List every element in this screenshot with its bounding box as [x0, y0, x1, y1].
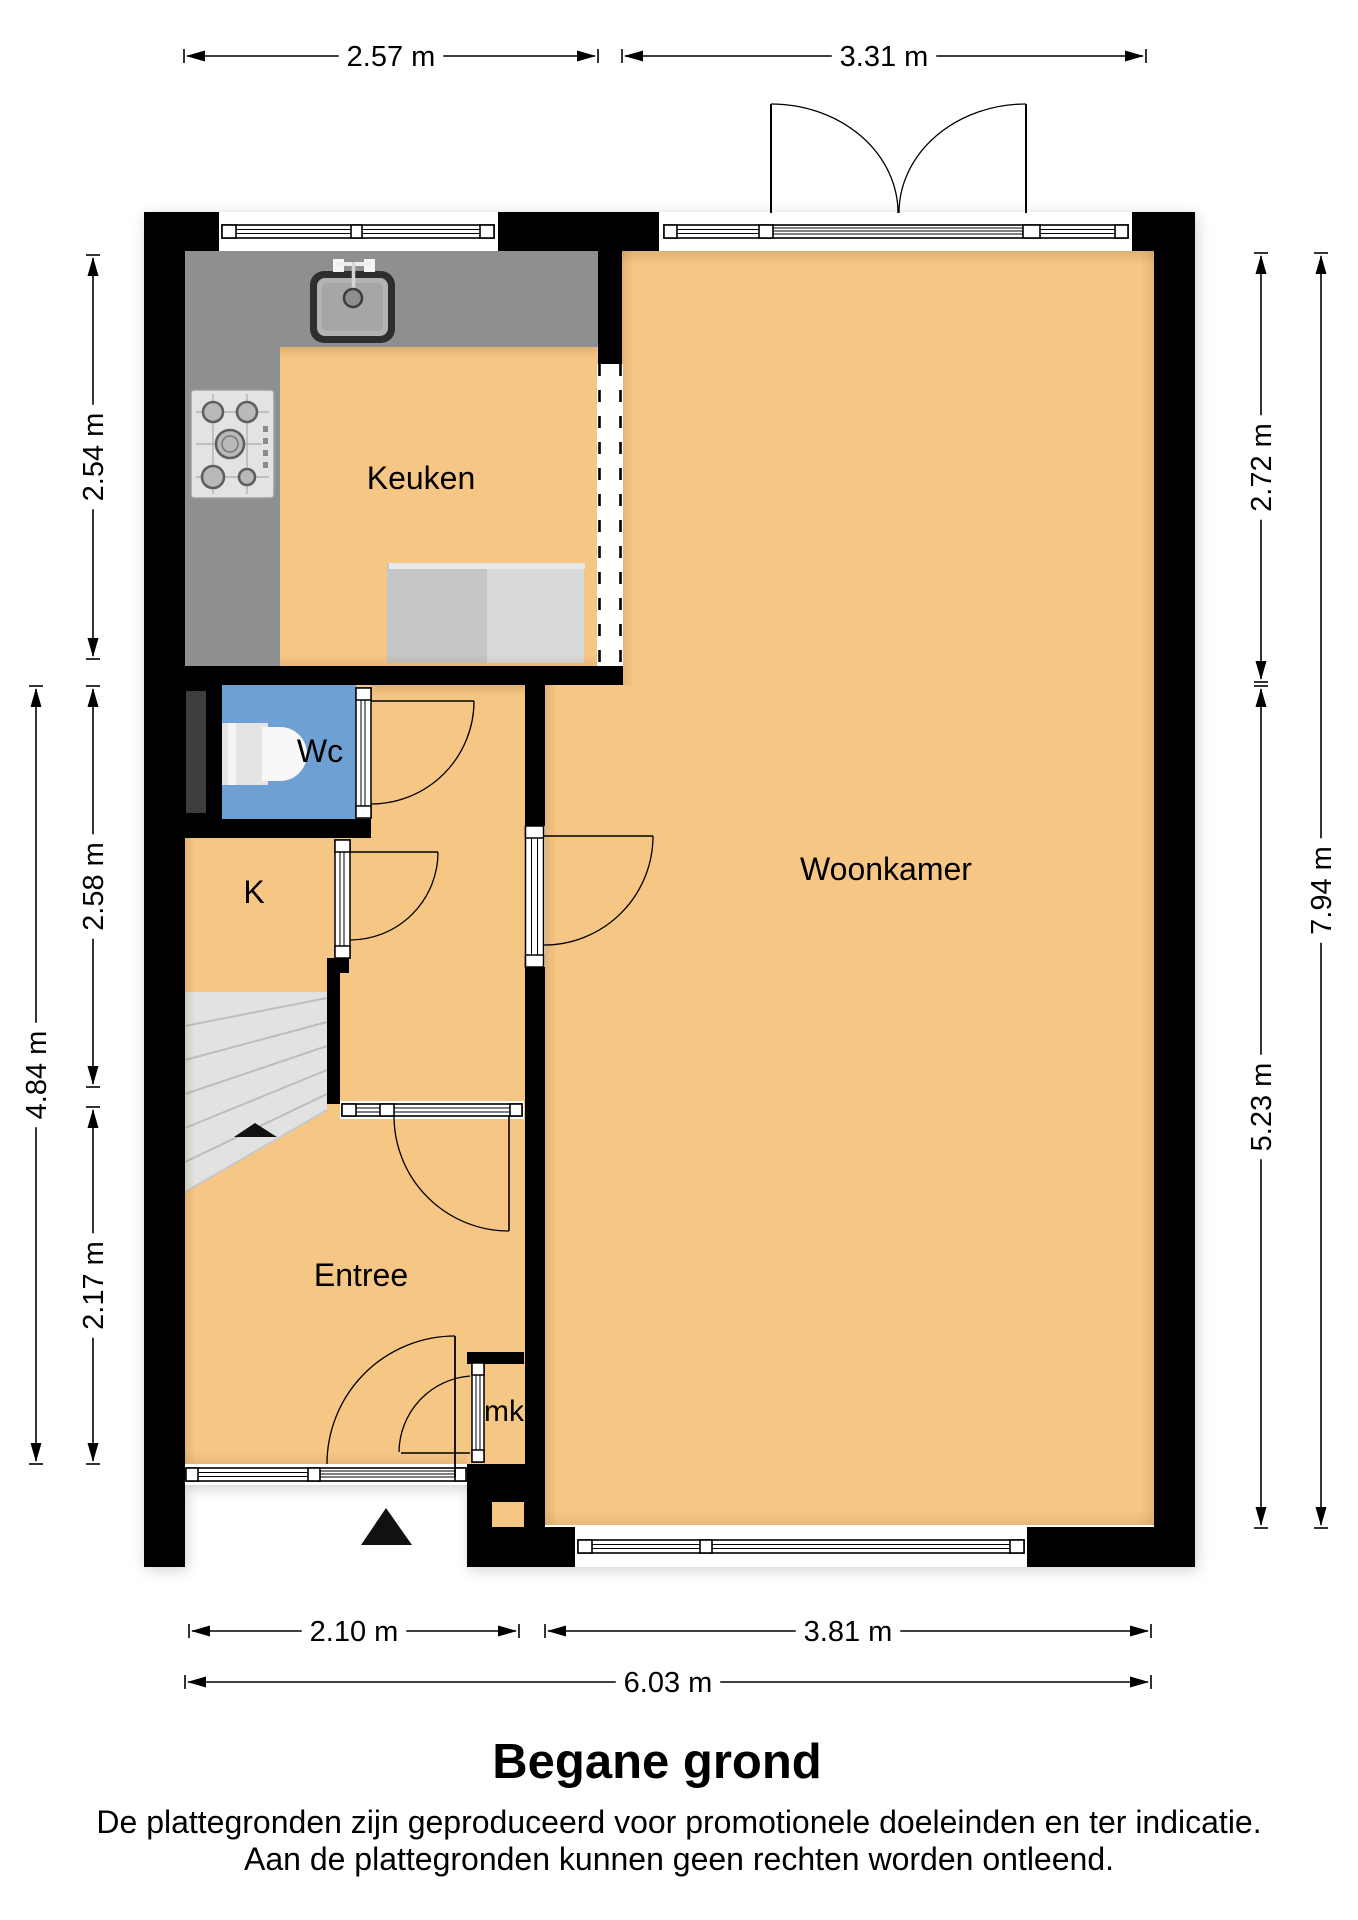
svg-text:Begane grond: Begane grond	[492, 1735, 821, 1789]
svg-text:7.94 m: 7.94 m	[1306, 846, 1338, 935]
svg-text:3.81 m: 3.81 m	[804, 1616, 893, 1648]
svg-text:Wc: Wc	[297, 733, 343, 769]
svg-text:2.10 m: 2.10 m	[310, 1616, 399, 1648]
svg-text:Keuken: Keuken	[367, 460, 476, 496]
svg-text:De plattegronden zijn geproduc: De plattegronden zijn geproduceerd voor …	[96, 1804, 1261, 1840]
svg-text:Entree: Entree	[314, 1257, 408, 1293]
svg-text:K: K	[243, 874, 264, 910]
svg-text:6.03 m: 6.03 m	[624, 1667, 713, 1699]
svg-text:2.17 m: 2.17 m	[78, 1241, 110, 1330]
svg-text:4.84 m: 4.84 m	[21, 1031, 53, 1120]
svg-text:3.31 m: 3.31 m	[840, 41, 929, 73]
svg-text:2.54 m: 2.54 m	[78, 413, 110, 502]
svg-text:mk: mk	[484, 1395, 525, 1428]
svg-text:2.58 m: 2.58 m	[78, 842, 110, 931]
svg-text:2.57 m: 2.57 m	[347, 41, 436, 73]
svg-text:Woonkamer: Woonkamer	[800, 851, 972, 887]
svg-text:2.72 m: 2.72 m	[1246, 423, 1278, 512]
svg-text:Aan de plattegronden kunnen ge: Aan de plattegronden kunnen geen rechten…	[244, 1841, 1114, 1877]
svg-text:5.23 m: 5.23 m	[1246, 1063, 1278, 1152]
